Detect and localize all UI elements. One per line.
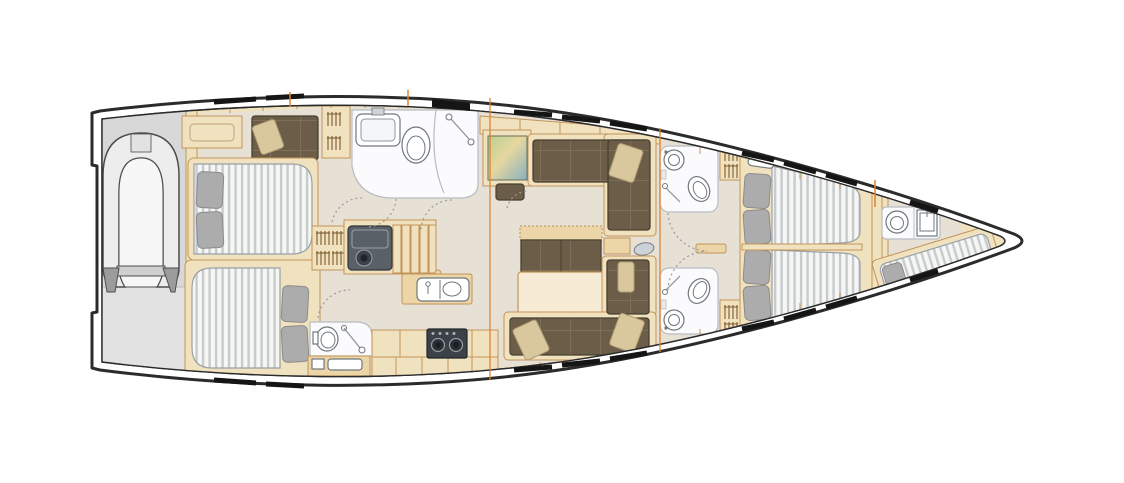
vanity-item bbox=[312, 359, 324, 369]
vanity-sink bbox=[328, 359, 362, 370]
pillow bbox=[281, 285, 309, 322]
tv-screen-icon bbox=[488, 136, 527, 180]
toilet-tank bbox=[313, 332, 318, 344]
head-aft-starboard bbox=[308, 322, 372, 376]
deck-plan-canvas bbox=[0, 0, 1124, 483]
bench-back bbox=[520, 226, 602, 240]
yacht-deck-plan bbox=[0, 0, 1124, 483]
pillow bbox=[196, 211, 224, 248]
dinghy-transom bbox=[117, 266, 165, 276]
companionway-steps bbox=[393, 225, 436, 273]
pillow bbox=[196, 171, 224, 208]
pillow bbox=[743, 209, 771, 245]
pillow bbox=[743, 285, 771, 321]
dinghy-bow-panel bbox=[131, 134, 151, 152]
double-berth-mattress bbox=[192, 268, 280, 368]
corridor-step bbox=[696, 244, 726, 253]
stove-icon bbox=[427, 329, 467, 358]
centerline-divider bbox=[742, 244, 862, 250]
pillow bbox=[743, 173, 771, 209]
head-aft-port bbox=[352, 108, 478, 198]
settee-pillow bbox=[618, 262, 634, 292]
faucet-icon bbox=[372, 108, 384, 115]
inflatable-dinghy bbox=[103, 133, 179, 292]
aft-cabin-starboard bbox=[185, 260, 320, 376]
pillow bbox=[743, 249, 771, 285]
forward-cabins bbox=[740, 148, 888, 344]
shelf-unit bbox=[182, 116, 242, 148]
stool bbox=[496, 184, 524, 200]
side-cabinet bbox=[604, 238, 630, 254]
pillow bbox=[281, 325, 309, 362]
toilet-icon bbox=[402, 127, 430, 163]
